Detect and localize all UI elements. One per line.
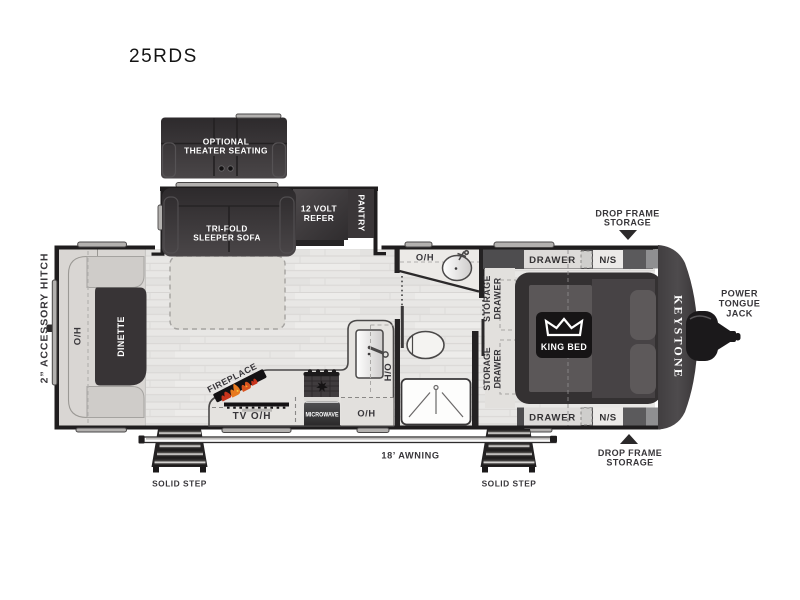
svg-text:O/H: O/H	[416, 253, 434, 263]
svg-text:SOLID STEP: SOLID STEP	[482, 479, 537, 489]
svg-text:STORAGE: STORAGE	[482, 275, 492, 322]
svg-text:TONGUE: TONGUE	[719, 299, 761, 309]
svg-text:STORAGE: STORAGE	[604, 218, 651, 228]
svg-text:N/S: N/S	[599, 413, 616, 424]
svg-text:SLEEPER SOFA: SLEEPER SOFA	[193, 234, 261, 243]
svg-text:PANTRY: PANTRY	[356, 194, 366, 231]
svg-text:DRAWER: DRAWER	[492, 277, 502, 319]
svg-text:TRI-FOLD: TRI-FOLD	[206, 225, 247, 234]
svg-text:H/O: H/O	[383, 363, 394, 382]
svg-text:STORAGE: STORAGE	[482, 347, 492, 390]
svg-text:KEYSTONE: KEYSTONE	[671, 295, 685, 379]
svg-text:DRAWER: DRAWER	[529, 255, 576, 266]
svg-text:DROP FRAME: DROP FRAME	[598, 448, 662, 458]
svg-text:N/S: N/S	[599, 255, 616, 266]
svg-text:DRAWER: DRAWER	[492, 349, 502, 389]
svg-text:12 VOLT: 12 VOLT	[301, 204, 338, 214]
svg-text:DRAWER: DRAWER	[529, 413, 576, 424]
svg-text:TV O/H: TV O/H	[233, 411, 272, 422]
svg-text:18’ AWNING: 18’ AWNING	[381, 451, 439, 461]
svg-text:REFER: REFER	[304, 213, 334, 223]
svg-text:JACK: JACK	[726, 309, 753, 319]
svg-text:O/H: O/H	[72, 327, 83, 345]
svg-text:STORAGE: STORAGE	[606, 458, 653, 468]
svg-text:THEATER SEATING: THEATER SEATING	[184, 146, 268, 156]
svg-text:POWER: POWER	[721, 289, 758, 299]
svg-text:DINETTE: DINETTE	[116, 316, 126, 356]
svg-text:25RDS: 25RDS	[129, 46, 198, 67]
svg-text:SOLID STEP: SOLID STEP	[152, 479, 207, 489]
svg-text:MICROWAVE: MICROWAVE	[306, 412, 340, 419]
svg-text:O/H: O/H	[357, 409, 375, 419]
svg-text:KING BED: KING BED	[541, 342, 587, 352]
svg-text:2” ACCESSORY HITCH: 2” ACCESSORY HITCH	[39, 253, 51, 384]
